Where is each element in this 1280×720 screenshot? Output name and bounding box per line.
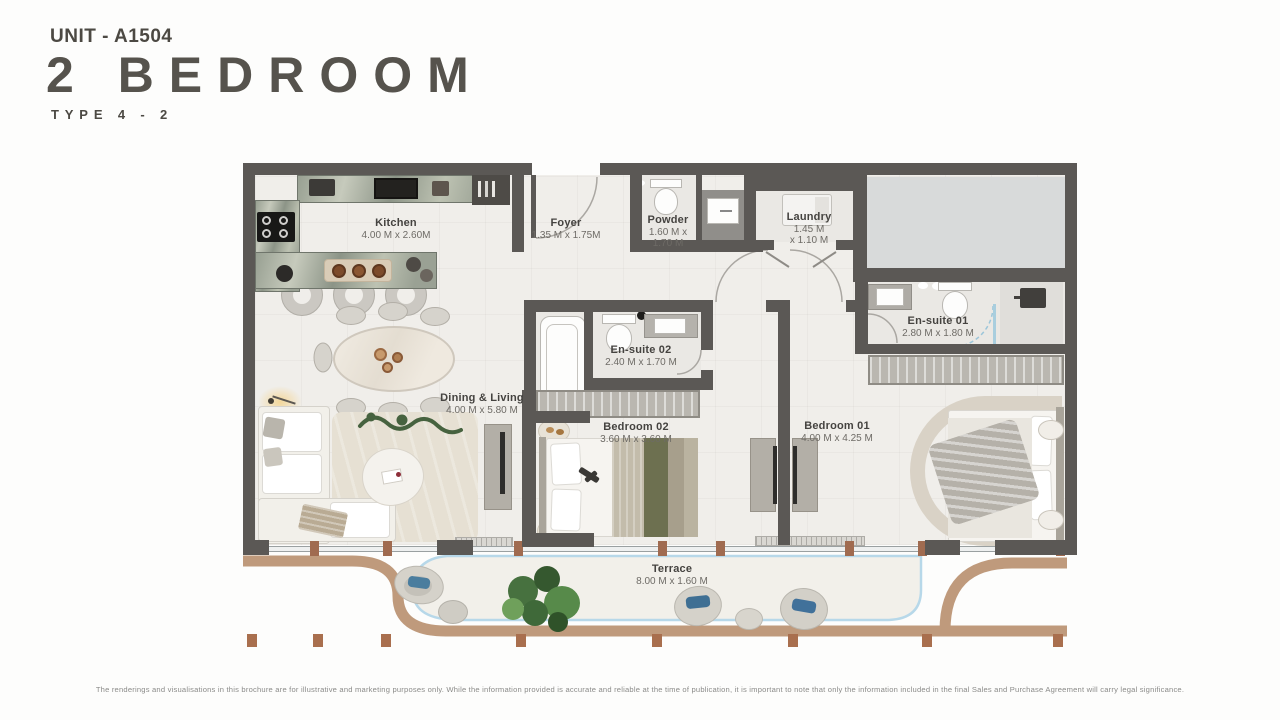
room-dims: 1.45 M (787, 224, 832, 236)
room-label-ensuite02: En-suite 02 2.40 M x 1.70 M (605, 344, 677, 368)
room-label-bedroom02: Bedroom 02 3.60 M x 3.60 M (600, 421, 672, 445)
wall (584, 306, 593, 380)
room-name: Powder (648, 214, 689, 227)
room-name: Dining & Living (440, 392, 524, 405)
wall (522, 390, 536, 533)
wall (243, 175, 255, 555)
room-name: Kitchen (362, 217, 431, 230)
wall (855, 344, 1065, 354)
wall (437, 540, 473, 555)
room-dims: x 1.10 M (787, 235, 832, 247)
room-dims: 4.00 M x 4.25 M (801, 433, 873, 445)
room-name: Terrace (636, 563, 708, 576)
wall (995, 540, 1077, 555)
wall (855, 268, 1077, 282)
wall (846, 300, 855, 312)
room-label-bedroom01: Bedroom 01 4.00 M x 4.25 M (801, 420, 873, 444)
window-mullion (383, 541, 392, 556)
window-mullion (845, 541, 854, 556)
room-label-dining-living: Dining & Living 4.00 M x 5.80 M (440, 392, 524, 416)
wall (243, 540, 269, 555)
room-dims: 4.00 M x 5.80 M (440, 405, 524, 417)
room-name: En-suite 02 (605, 344, 677, 357)
room-label-powder: Powder 1.60 M x 1.70 M (648, 214, 689, 250)
room-name: Laundry (787, 211, 832, 224)
leaf (397, 415, 408, 426)
wall (744, 191, 756, 240)
wall (512, 175, 524, 252)
window-mullion (310, 541, 319, 556)
window-mullion (716, 541, 725, 556)
wall (853, 175, 867, 282)
wall (522, 533, 594, 547)
room-name: En-suite 01 (902, 315, 974, 328)
wall (1065, 175, 1077, 555)
room-dims: 3.60 M x 3.60 M (600, 434, 672, 446)
room-label-ensuite01: En-suite 01 2.80 M x 1.80 M (902, 315, 974, 339)
wall (744, 175, 867, 191)
wall (584, 378, 713, 390)
window-mullion (658, 541, 667, 556)
room-label-kitchen: Kitchen 4.00 M x 2.60M (362, 217, 431, 241)
bedroom-partition-wall (778, 312, 790, 545)
room-dims: 1.60 M x (648, 227, 689, 239)
wall (701, 300, 713, 350)
wall (766, 300, 790, 312)
room-name: Foyer (532, 217, 601, 230)
room-dims: 1.70 M (648, 238, 689, 250)
wall (925, 540, 960, 555)
room-dims: 1.35 M x 1.75M (532, 230, 601, 242)
wall (600, 163, 1077, 175)
wall (696, 175, 702, 242)
wall (756, 240, 774, 250)
room-dims: 2.80 M x 1.80 M (902, 328, 974, 340)
wall (524, 300, 713, 312)
room-label-terrace: Terrace 8.00 M x 1.60 M (636, 563, 708, 587)
room-label-laundry: Laundry 1.45 M x 1.10 M (787, 211, 832, 247)
room-name: Bedroom 01 (801, 420, 873, 433)
room-name: Bedroom 02 (600, 421, 672, 434)
wall (836, 240, 853, 250)
room-dims: 8.00 M x 1.60 M (636, 576, 708, 588)
leaf (367, 413, 376, 422)
room-label-foyer: Foyer 1.35 M x 1.75M (532, 217, 601, 241)
green-branch-decor (360, 418, 461, 433)
room-dims: 4.00 M x 2.60M (362, 230, 431, 242)
room-dims: 2.40 M x 1.70 M (605, 357, 677, 369)
wall (243, 163, 532, 175)
floorplan-brochure-page: UNIT - A1504 2 BEDROOM TYPE 4 - 2 (0, 0, 1280, 720)
